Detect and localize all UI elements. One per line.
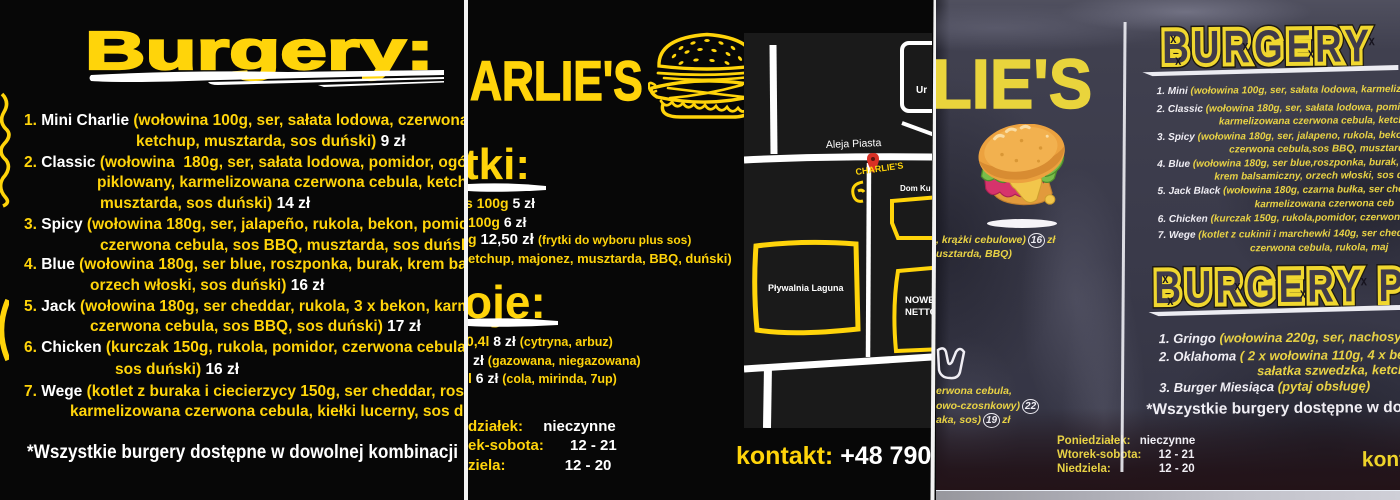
svg-text:CHARLIE'S: CHARLIE'S (855, 160, 904, 177)
svg-text:Pływalnia Laguna: Pływalnia Laguna (768, 283, 845, 293)
svg-text:NOWE: NOWE (905, 295, 932, 306)
svg-text:NETTO: NETTO (905, 307, 932, 318)
svg-text:Dom Ku: Dom Ku (900, 184, 931, 193)
svg-text:Aleja Piasta: Aleja Piasta (826, 137, 882, 151)
svg-text:Ur: Ur (916, 85, 927, 96)
